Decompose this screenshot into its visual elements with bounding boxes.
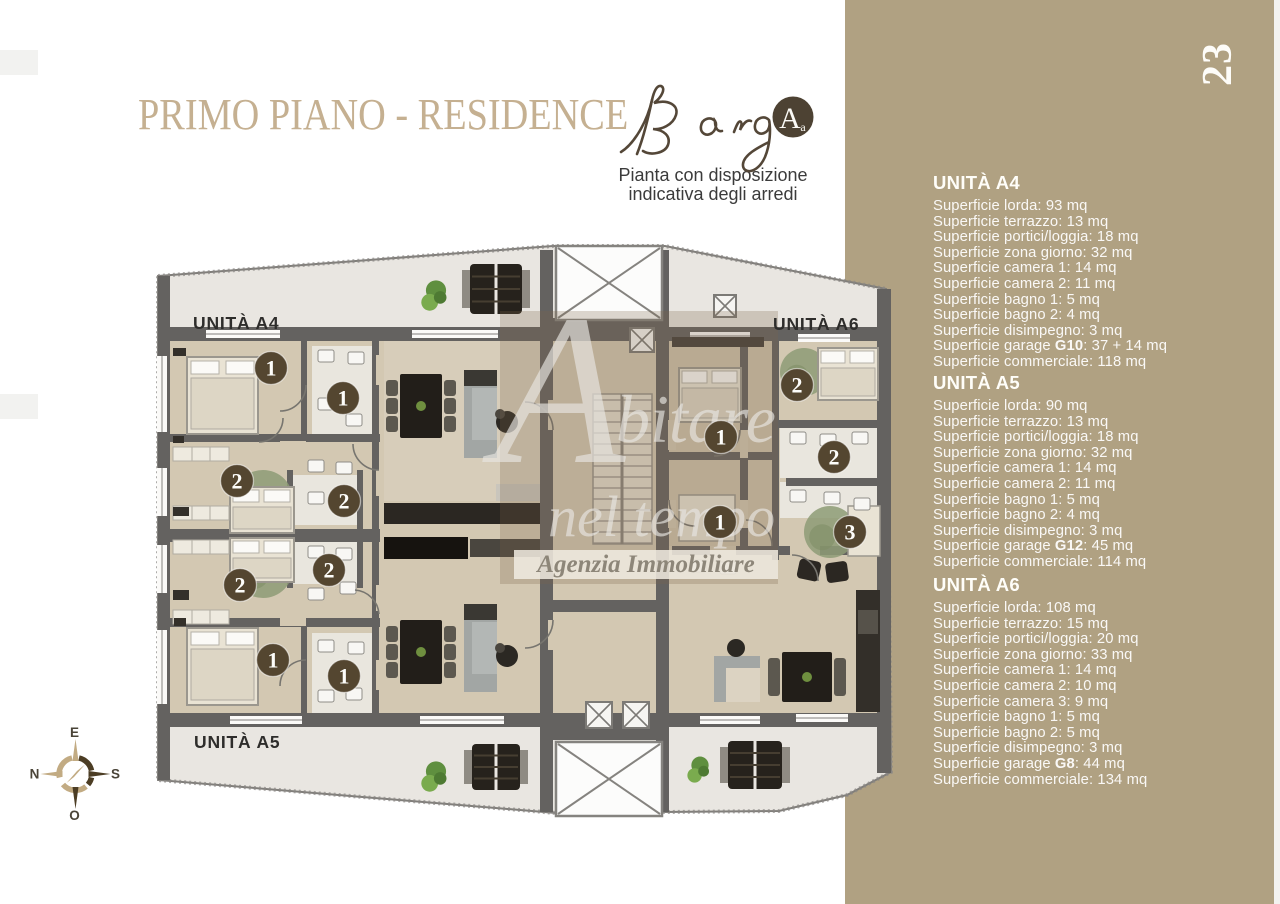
svg-text:S: S [111,767,120,782]
svg-text:UNITÀ A5: UNITÀ A5 [194,731,280,752]
svg-text:Agenzia Immobiliare: Agenzia Immobiliare [535,551,754,578]
svg-text:1: 1 [339,664,350,689]
svg-text:O: O [69,808,80,823]
svg-text:a: a [800,120,806,134]
svg-text:1: 1 [268,648,279,673]
svg-text:2: 2 [324,558,335,583]
svg-text:3: 3 [845,520,856,545]
svg-text:E: E [70,725,79,740]
svg-text:2: 2 [792,373,803,398]
svg-text:nel tempo: nel tempo [548,484,775,549]
svg-text:UNITÀ A6: UNITÀ A6 [773,313,859,334]
svg-text:UNITÀ A4: UNITÀ A4 [193,312,279,333]
svg-text:2: 2 [235,573,246,598]
svg-text:bitare: bitare [616,381,776,457]
svg-text:N: N [30,767,40,782]
svg-text:1: 1 [338,386,349,411]
svg-text:2: 2 [829,445,840,470]
svg-text:A: A [482,270,627,509]
svg-text:1: 1 [716,425,727,450]
svg-text:1: 1 [266,356,277,381]
svg-text:A: A [779,102,801,135]
svg-text:1: 1 [715,510,726,535]
svg-text:2: 2 [232,469,243,494]
svg-text:2: 2 [339,489,350,514]
